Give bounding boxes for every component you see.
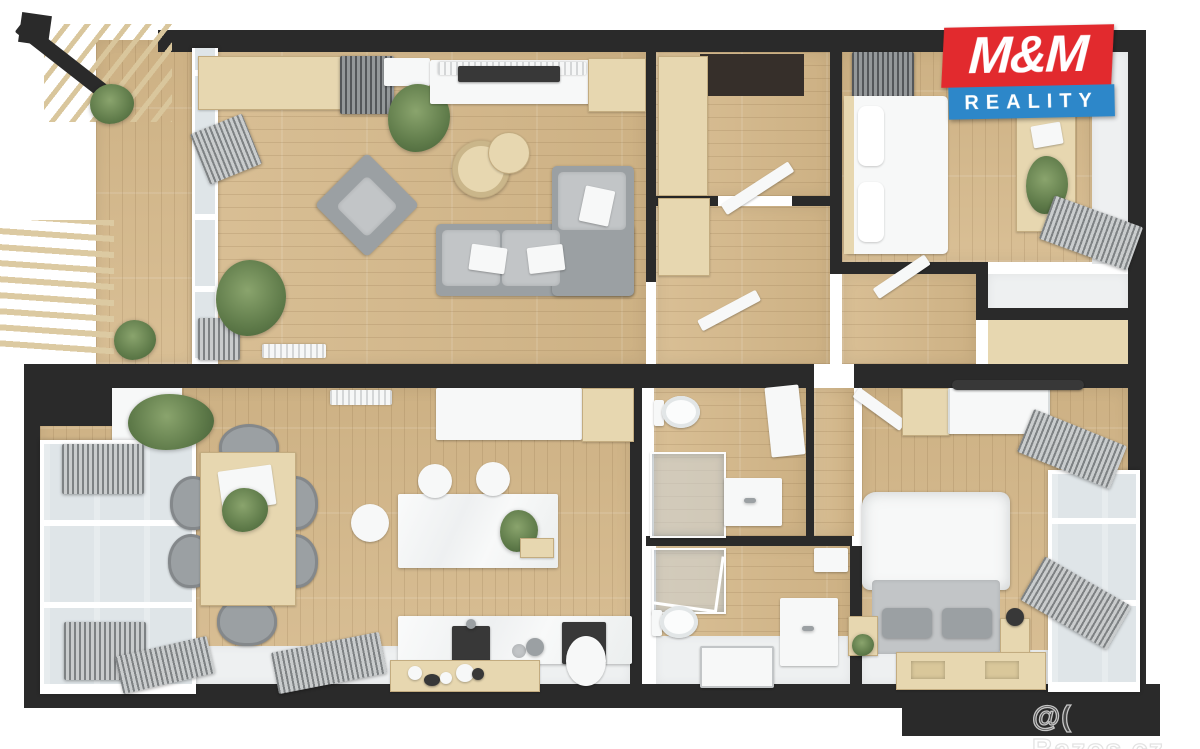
pergola-post — [18, 12, 52, 46]
kitchen-cutting-board — [520, 538, 554, 558]
agency-logo-subtitle: REALITY — [948, 84, 1115, 119]
kitchen-tall-cabinet — [582, 388, 634, 442]
bathroom2-bathmat — [700, 646, 774, 688]
bathroom2-shelf — [814, 548, 848, 572]
bedroom2-wardrobe-wood — [902, 388, 950, 436]
kitchen-sink — [452, 626, 490, 662]
bathroom1-faucet — [744, 498, 756, 503]
hall-wardrobe-1 — [658, 56, 708, 196]
bedroom1-pillow-2 — [858, 182, 884, 242]
tv-screen — [458, 66, 560, 82]
living-cabinet — [384, 58, 430, 86]
wall-dining-corner — [24, 364, 114, 426]
bathroom2-shower-frame — [652, 548, 724, 613]
balcony-fence-slats — [0, 220, 114, 354]
dining-vent — [330, 390, 392, 405]
bathroom2-faucet — [802, 626, 814, 631]
bathroom2-basin-cabinet — [780, 598, 838, 666]
corridor-floor-3 — [988, 320, 1142, 364]
sofa-pillow-2 — [527, 244, 566, 274]
living-sideboard — [198, 56, 346, 110]
bathroom2-toilet — [660, 606, 698, 638]
wall-bathroom1-right — [806, 388, 814, 536]
bedroom2-bench-notch-1 — [911, 661, 945, 679]
kitchen-stool-1 — [351, 504, 389, 542]
agency-logo: M&M REALITY — [942, 24, 1115, 120]
floor-vent — [262, 344, 326, 358]
kitchen-bowl-1 — [408, 666, 422, 680]
kitchen-pan-1 — [512, 644, 526, 658]
bedroom2-tv — [952, 380, 1084, 390]
bathroom1-shower — [650, 452, 726, 538]
bedroom1-headboard — [844, 96, 854, 254]
wall-livingroom-right — [646, 52, 656, 282]
bedroom1-pillow-1 — [858, 106, 884, 166]
bedroom1-bed — [844, 96, 948, 254]
wall-left-bottom — [24, 424, 40, 686]
wall-bedroom1-left — [830, 52, 842, 274]
wall-hall-b — [792, 196, 832, 206]
coffee-table-small — [488, 132, 530, 174]
bedroom2-pillow-2 — [942, 608, 992, 638]
kitchen-boiler — [566, 636, 606, 686]
dining-radiator-1 — [62, 444, 144, 494]
kitchen-pan-2 — [526, 638, 544, 656]
sofa-pillow-1 — [468, 244, 507, 275]
bedroom2-bed-duvet — [862, 492, 1010, 590]
floorplan-render: M&M REALITY @( Bazos.cz — [0, 0, 1200, 749]
bathroom1-toilet — [662, 396, 700, 428]
wall-middle-left — [24, 364, 814, 388]
passage-floor — [814, 388, 854, 536]
bathroom1-open-door — [764, 384, 805, 457]
agency-logo-name: M&M — [941, 24, 1114, 88]
kitchen-bowl-5 — [472, 668, 484, 680]
bathroom2-shower — [652, 548, 726, 614]
hall-wardrobe-2 — [658, 198, 710, 276]
living-shelf — [588, 58, 646, 112]
wall-bathroom2-right — [850, 546, 862, 684]
armchair-cushion — [336, 175, 398, 237]
bedroom2-pillow-1 — [882, 608, 932, 638]
kitchen-bowl-2 — [424, 674, 440, 686]
bedroom2-pot — [1006, 608, 1024, 626]
kitchen-wall-cabinet — [436, 388, 582, 440]
watermark-text: @( Bazos.cz — [1032, 701, 1200, 749]
corridor-floor-2 — [842, 274, 976, 364]
kitchen-bowl-3 — [440, 672, 452, 684]
wall-bedroom1-bottom2 — [976, 308, 1142, 320]
kitchen-stool-2 — [418, 464, 452, 498]
entry-doorway — [700, 54, 804, 96]
bedroom2-bench — [896, 652, 1046, 690]
kitchen-faucet — [466, 619, 476, 629]
kitchen-stool-3 — [476, 462, 510, 496]
bedroom2-bench-notch-2 — [985, 661, 1019, 679]
